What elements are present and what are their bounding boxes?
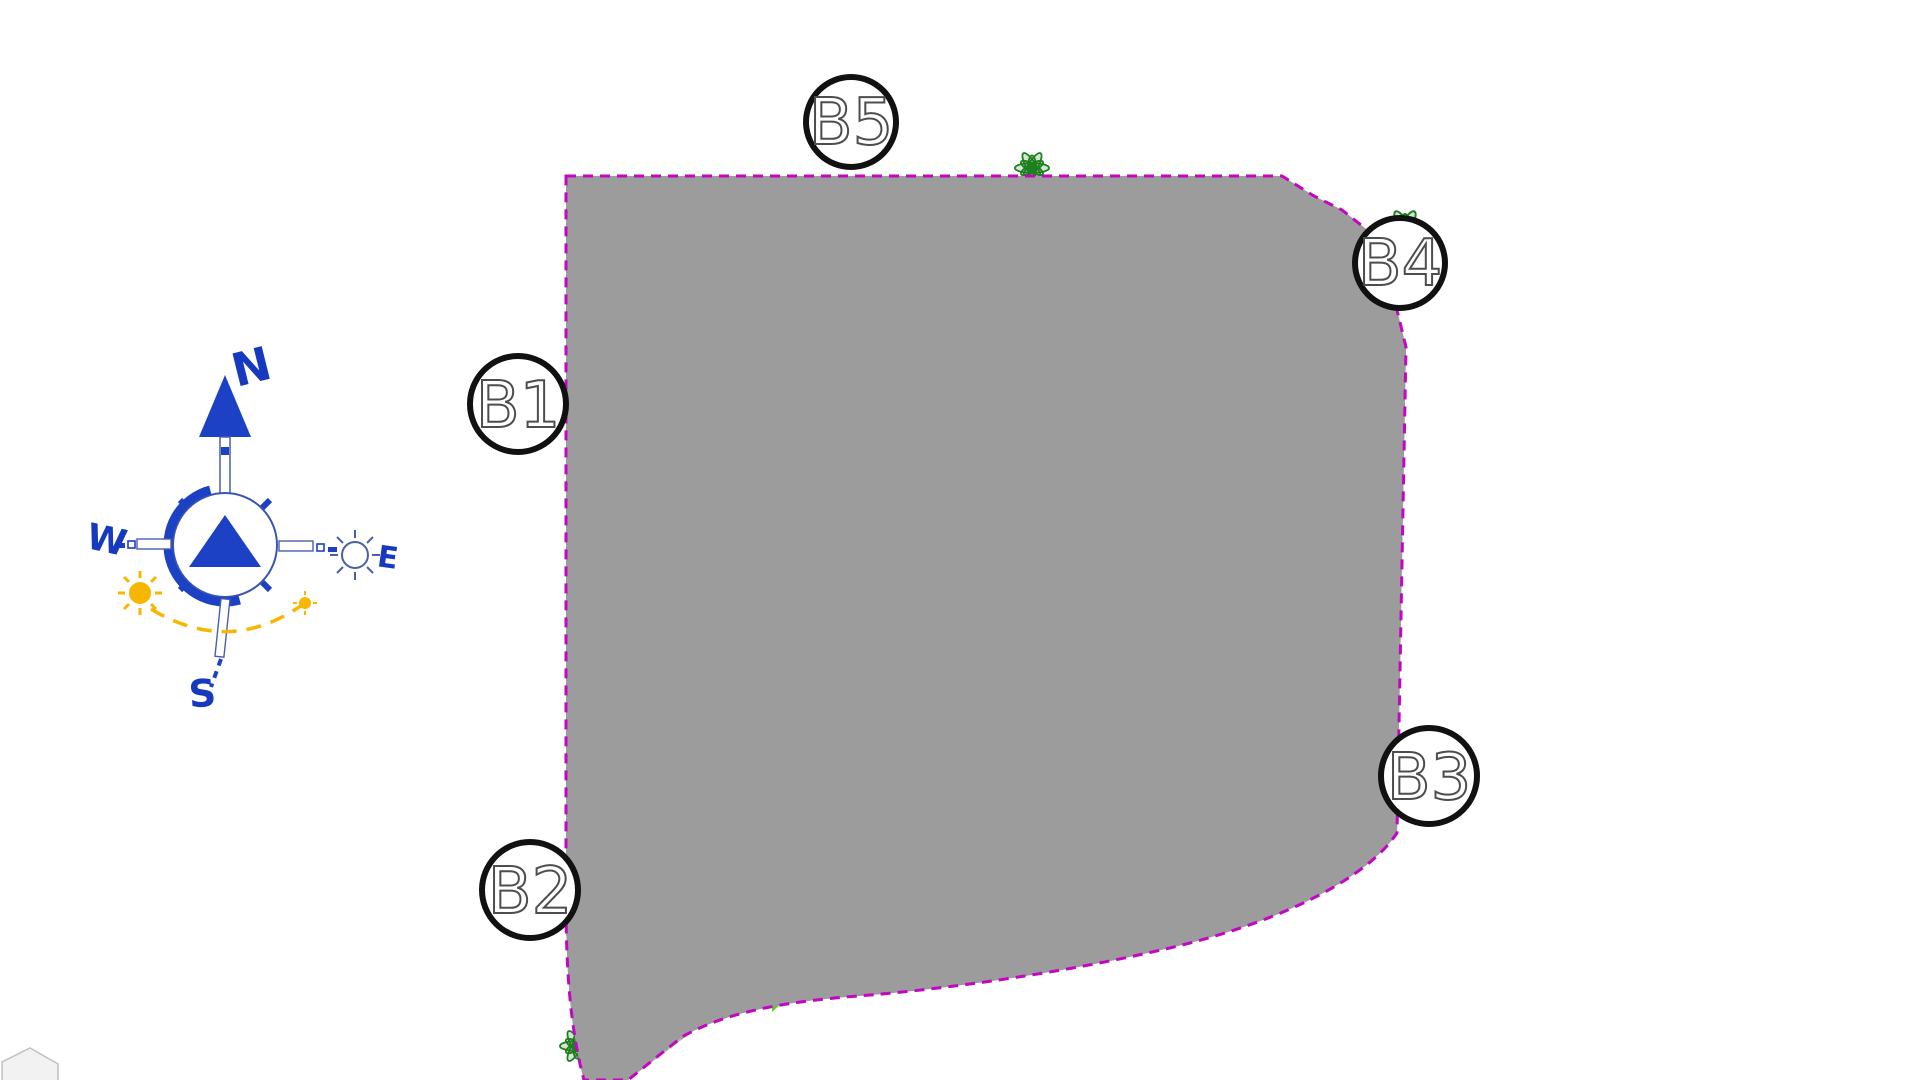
block-b5-label: B5	[809, 86, 894, 160]
block-b3-label: B3	[1387, 741, 1472, 815]
compass-west-square	[128, 541, 135, 548]
block-circle-b1: B1	[470, 356, 566, 452]
compass-shaft-south	[215, 599, 230, 658]
block-circle-b4: B4	[1355, 218, 1445, 308]
block-b1-label: B1	[476, 369, 561, 443]
compass-shaft-tick	[221, 447, 229, 455]
sun-icon	[118, 571, 162, 615]
compass-east-square	[317, 544, 324, 551]
site-plan-image: N W E	[0, 0, 1920, 1080]
compass-shaft-west	[137, 539, 171, 549]
compass-rose: N W E	[83, 336, 400, 717]
compass-west-label: W	[83, 516, 130, 564]
compass-south-label: S	[187, 671, 217, 717]
block-b2-label: B2	[488, 855, 573, 929]
sun-small-icon	[293, 591, 317, 615]
compass-east-dash	[328, 547, 337, 552]
corner-roof-glyph	[2, 1048, 58, 1080]
compass-north-label: N	[226, 336, 276, 398]
site-plan: PETANCA CHILDREN GIMNASIA	[560, 151, 1424, 1080]
compass-shaft-north	[220, 437, 230, 495]
site-plan-page: N W E	[0, 0, 1920, 1080]
plot-boundary	[566, 176, 1406, 1080]
compass-east-label: E	[375, 539, 400, 577]
block-circle-b2: B2	[482, 842, 578, 938]
compass-shaft-east	[279, 541, 313, 551]
block-circle-b3: B3	[1381, 728, 1477, 824]
block-circle-b5: B5	[806, 77, 896, 167]
block-b4-label: B4	[1358, 227, 1443, 301]
sun-outline-icon	[330, 530, 380, 580]
